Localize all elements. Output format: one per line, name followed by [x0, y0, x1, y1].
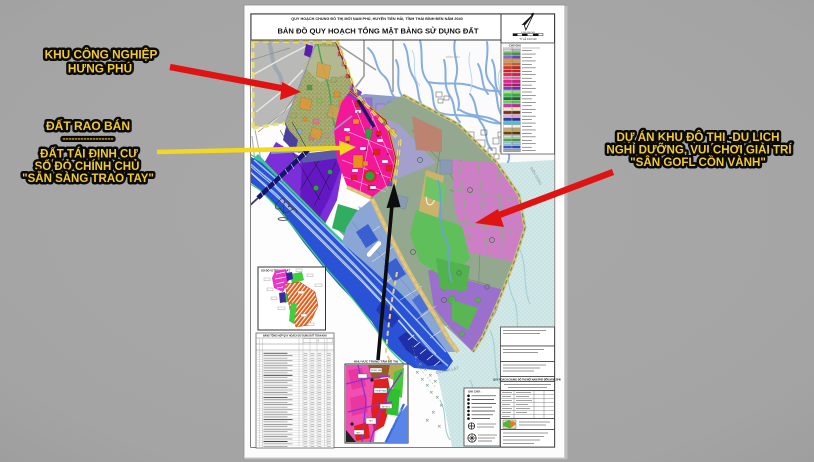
- svg-text:CỒN VẠN: CỒN VẠN: [446, 54, 460, 59]
- svg-text:-----------------: -----------------: [63, 134, 114, 144]
- svg-text:HƯNG PHÚ: HƯNG PHÚ: [68, 62, 132, 76]
- svg-text:KĐT 1: KĐT 1: [356, 433, 361, 435]
- svg-text:SỔ ĐỎ CHÍNH CHỦ: SỔ ĐỎ CHÍNH CHỦ: [35, 160, 140, 173]
- svg-text:QUY HOẠCH CHUNG ĐÔ THỊ MỚI NAM: QUY HOẠCH CHUNG ĐÔ THỊ MỚI NAM PHÚ, HUYỆ…: [291, 16, 463, 21]
- svg-text:GHI CHÚ :: GHI CHÚ :: [468, 388, 482, 393]
- svg-text:BẢNG TỔNG HỢP QUY HOẠCH SỬ DỤN: BẢNG TỔNG HỢP QUY HOẠCH SỬ DỤNG ĐẤT TOÀN…: [263, 334, 327, 337]
- svg-text:KĐT Số 2: KĐT Số 2: [382, 406, 390, 409]
- svg-text:"SẴN SÀNG TRAO TAY": "SẴN SÀNG TRAO TAY": [22, 172, 154, 185]
- svg-text:KHU CÔNG NGHIỆP: KHU CÔNG NGHIỆP: [45, 48, 158, 62]
- svg-text:"SÂN GOFL CỒN VÀNH": "SÂN GOFL CỒN VÀNH": [630, 156, 766, 169]
- svg-text:ĐẤT RAO BÁN: ĐẤT RAO BÁN: [46, 118, 130, 133]
- svg-text:KHU VỰC TRUNG TÂM ĐÔ THỊ: KHU VỰC TRUNG TÂM ĐÔ THỊ: [354, 359, 398, 364]
- svg-text:NGHỈ DƯỠNG, VUI CHƠI GIẢI TRÍ: NGHỈ DƯỠNG, VUI CHƠI GIẢI TRÍ: [606, 144, 792, 157]
- svg-text:TRUNG TÂM: TRUNG TÂM: [375, 390, 386, 393]
- svg-text:ĐẤT TÁI ĐỊNH CƯ: ĐẤT TÁI ĐỊNH CƯ: [40, 148, 138, 161]
- svg-text:TRUNG TÂM: TRUNG TÂM: [371, 369, 382, 372]
- svg-text:DỰ ÁN KHU ĐÔ THỊ -DU LỊCH: DỰ ÁN KHU ĐÔ THỊ -DU LỊCH: [617, 131, 780, 144]
- svg-text:QUY HOẠCH CHUNG ĐÔ THỊ MỚI NAM: QUY HOẠCH CHUNG ĐÔ THỊ MỚI NAM PHÚ ĐẾN N…: [493, 378, 561, 381]
- svg-text:BẢN ĐỒ QUY HOẠCH TỔNG MẶT BẰNG: BẢN ĐỒ QUY HOẠCH TỔNG MẶT BẰNG SỬ DỤNG Đ…: [277, 26, 478, 36]
- svg-text:TỶ LỆ 1/10.000: TỶ LỆ 1/10.000: [519, 38, 537, 41]
